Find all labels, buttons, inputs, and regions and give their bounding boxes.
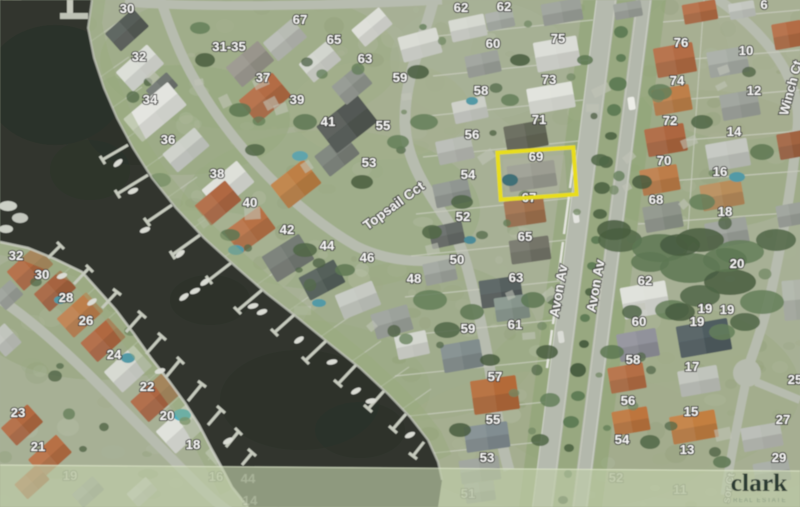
svg-text:clark: clark [731, 468, 788, 497]
svg-text:REAL ESTATE: REAL ESTATE [733, 498, 787, 504]
